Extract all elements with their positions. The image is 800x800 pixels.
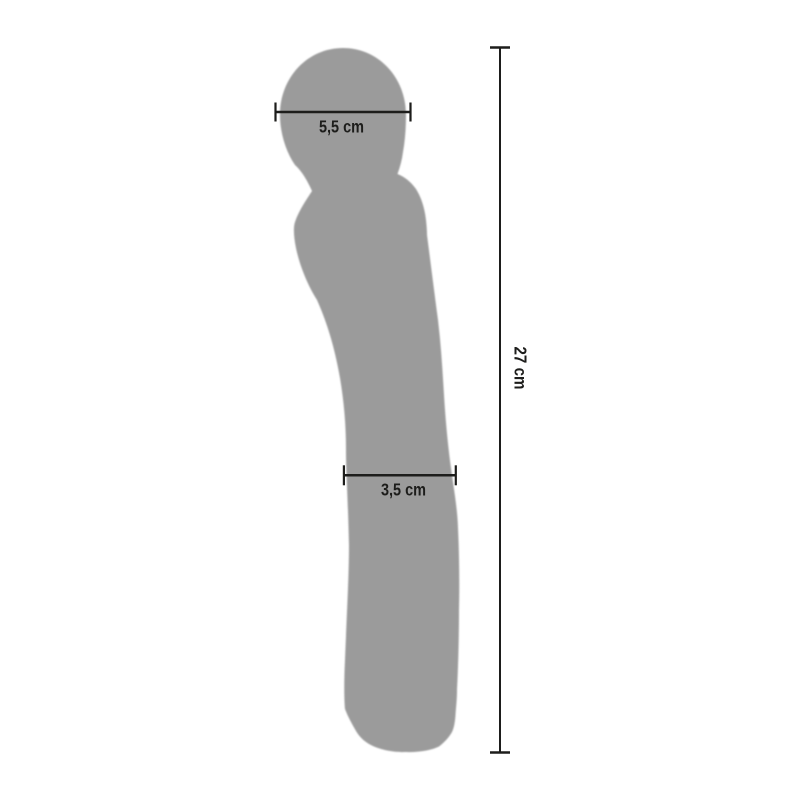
svg-text:3,5 cm: 3,5 cm	[381, 480, 426, 500]
svg-text:27 cm: 27 cm	[511, 347, 531, 390]
svg-text:5,5 cm: 5,5 cm	[319, 117, 364, 137]
